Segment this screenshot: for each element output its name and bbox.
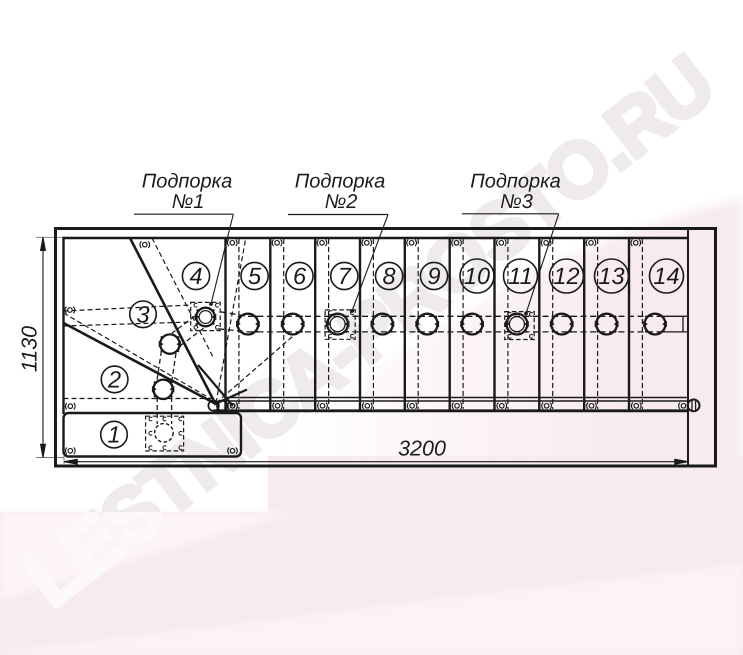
svg-text:13: 13	[598, 263, 624, 289]
svg-text:8: 8	[383, 263, 396, 289]
svg-text:1130: 1130	[18, 326, 42, 372]
svg-text:3: 3	[136, 301, 149, 327]
svg-text:12: 12	[553, 263, 579, 289]
svg-text:14: 14	[653, 263, 679, 289]
svg-text:4: 4	[189, 263, 202, 289]
svg-text:Подпорка: Подпорка	[142, 171, 233, 193]
svg-text:1: 1	[107, 422, 120, 448]
svg-text:5: 5	[248, 263, 262, 289]
svg-text:9: 9	[427, 263, 440, 289]
svg-text:6: 6	[293, 263, 307, 289]
svg-text:7: 7	[338, 263, 352, 289]
svg-text:№2: №2	[325, 191, 358, 213]
svg-text:3200: 3200	[398, 437, 446, 461]
svg-text:Подпорка: Подпорка	[470, 171, 561, 193]
svg-text:Подпорка: Подпорка	[295, 171, 386, 193]
svg-text:№3: №3	[500, 191, 533, 213]
svg-text:2: 2	[107, 366, 121, 392]
svg-text:10: 10	[464, 263, 490, 289]
svg-text:№1: №1	[172, 191, 205, 213]
svg-text:11: 11	[508, 263, 532, 289]
